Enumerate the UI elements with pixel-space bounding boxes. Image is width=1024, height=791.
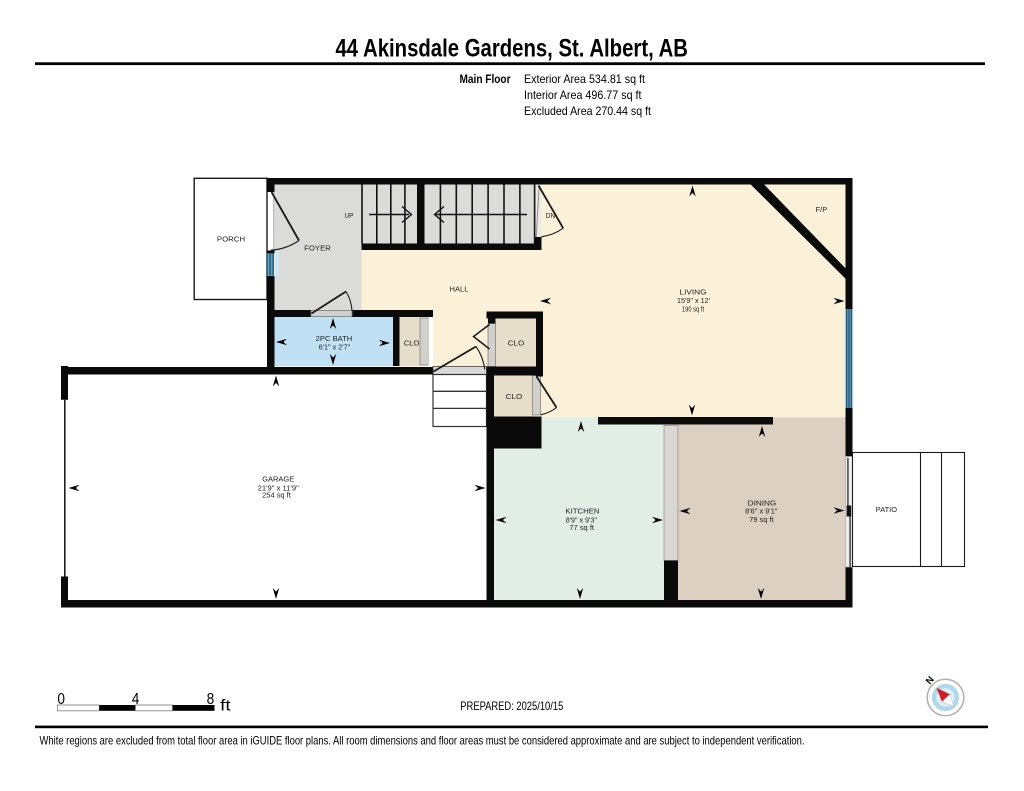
- svg-text:DN: DN: [546, 211, 556, 220]
- svg-text:UP: UP: [345, 211, 354, 220]
- svg-text:Exterior Area 534.81 sq ft: Exterior Area 534.81 sq ft: [524, 72, 646, 86]
- svg-text:CLO: CLO: [404, 339, 420, 348]
- svg-text:4: 4: [132, 691, 140, 708]
- svg-text:KITCHEN: KITCHEN: [565, 507, 599, 516]
- svg-text:Excluded Area 270.44 sq ft: Excluded Area 270.44 sq ft: [524, 104, 652, 118]
- svg-text:HALL: HALL: [450, 285, 469, 294]
- svg-text:190 sq ft: 190 sq ft: [682, 304, 705, 313]
- svg-text:79 sq ft: 79 sq ft: [749, 515, 774, 524]
- svg-text:PATIO: PATIO: [876, 505, 897, 514]
- svg-text:FOYER: FOYER: [304, 244, 331, 253]
- svg-text:GARAGE: GARAGE: [262, 475, 294, 484]
- svg-text:0: 0: [57, 691, 65, 708]
- svg-text:White regions are excluded fro: White regions are excluded from total fl…: [40, 734, 805, 748]
- svg-text:6'1" x 2'7": 6'1" x 2'7": [319, 343, 351, 352]
- svg-text:CLO: CLO: [508, 339, 525, 348]
- svg-text:F/P: F/P: [816, 205, 828, 214]
- svg-text:44 Akinsdale Gardens, St. Albe: 44 Akinsdale Gardens, St. Albert, AB: [336, 35, 689, 63]
- svg-text:CLO: CLO: [506, 392, 523, 401]
- svg-text:77 sq ft: 77 sq ft: [569, 523, 595, 532]
- svg-text:Main Floor: Main Floor: [460, 72, 511, 86]
- svg-text:254 sq ft: 254 sq ft: [262, 491, 292, 500]
- svg-text:PORCH: PORCH: [217, 235, 245, 244]
- svg-text:ft: ft: [220, 698, 231, 715]
- svg-text:PREPARED: 2025/10/15: PREPARED: 2025/10/15: [460, 699, 563, 713]
- svg-text:8: 8: [207, 691, 215, 708]
- svg-text:Interior Area 496.77 sq ft: Interior Area 496.77 sq ft: [524, 88, 642, 102]
